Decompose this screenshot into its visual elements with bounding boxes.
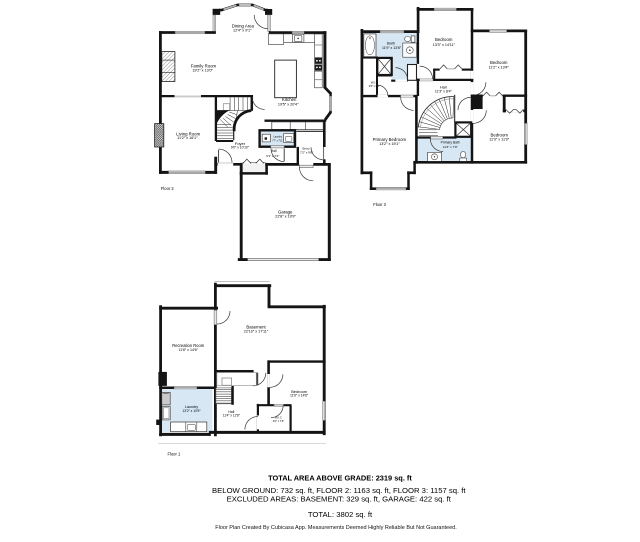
svg-text:Basement: Basement xyxy=(246,325,266,330)
svg-text:22′8″ x 19′9″: 22′8″ x 19′9″ xyxy=(275,214,296,218)
svg-text:Primary Bedroom: Primary Bedroom xyxy=(373,137,407,142)
svg-text:Hall: Hall xyxy=(271,149,277,153)
svg-text:12′4″ x 9′1″: 12′4″ x 9′1″ xyxy=(233,29,252,33)
svg-text:4′0″ x 7′6″: 4′0″ x 7′6″ xyxy=(273,419,284,423)
svg-text:3′6″ x 9′6″: 3′6″ x 9′6″ xyxy=(369,84,380,88)
svg-text:7′2″ x 9′6″: 7′2″ x 9′6″ xyxy=(300,150,313,154)
svg-text:Family Room: Family Room xyxy=(191,64,217,69)
svg-text:13′2″ x 15′1″: 13′2″ x 15′1″ xyxy=(379,142,400,146)
svg-text:Floor Plan Created By Cubicasa: Floor Plan Created By Cubicasa App. Meas… xyxy=(215,525,457,531)
svg-text:Kitchen: Kitchen xyxy=(282,97,297,102)
svg-text:Living Room: Living Room xyxy=(176,131,200,136)
svg-text:11′9″ x 13′8″: 11′9″ x 13′8″ xyxy=(382,46,402,50)
svg-text:Bedroom: Bedroom xyxy=(490,60,508,65)
svg-text:11′3″ x 7′9″: 11′3″ x 7′9″ xyxy=(443,145,459,149)
svg-text:11′6″ x 14′6″: 11′6″ x 14′6″ xyxy=(290,393,309,397)
svg-text:Floor 2: Floor 2 xyxy=(161,186,174,191)
svg-text:Floor 1: Floor 1 xyxy=(168,452,181,457)
svg-text:Laundry: Laundry xyxy=(273,135,282,138)
svg-text:11′8″ x 14′6″: 11′8″ x 14′6″ xyxy=(178,348,198,352)
svg-text:W.I.C: W.I.C xyxy=(371,80,378,84)
svg-text:Bedroom: Bedroom xyxy=(490,132,508,137)
svg-text:13′2″ x 10′9″: 13′2″ x 10′9″ xyxy=(182,409,201,413)
svg-text:11′2″ x 16′1″: 11′2″ x 16′1″ xyxy=(177,136,198,140)
svg-text:Primary Bath: Primary Bath xyxy=(441,141,460,145)
svg-text:EXCLUDED AREAS: BASEMENT: 329: EXCLUDED AREAS: BASEMENT: 329 sq. ft, GA… xyxy=(227,495,452,504)
svg-text:7′7″ x 7′11″: 7′7″ x 7′11″ xyxy=(272,140,283,142)
svg-text:TOTAL AREA ABOVE GRADE: 2319 s: TOTAL AREA ABOVE GRADE: 2319 sq. ft xyxy=(268,473,412,482)
svg-text:Floor 3: Floor 3 xyxy=(373,202,386,207)
svg-text:Entry: Entry xyxy=(302,146,310,150)
svg-text:Bath: Bath xyxy=(387,42,395,46)
svg-text:11′4″ x 12′8″: 11′4″ x 12′8″ xyxy=(223,413,241,417)
svg-text:19′2″ x 13′0″: 19′2″ x 13′0″ xyxy=(192,69,213,73)
svg-text:Hall: Hall xyxy=(440,85,447,89)
svg-text:13′3″ x 14′11″: 13′3″ x 14′11″ xyxy=(433,43,456,47)
svg-text:Dining Area: Dining Area xyxy=(232,24,255,29)
svg-text:9′0″ x 10′10″: 9′0″ x 10′10″ xyxy=(231,146,250,150)
svg-text:Bedroom: Bedroom xyxy=(435,37,453,42)
svg-text:11′3″ x 8′4″: 11′3″ x 8′4″ xyxy=(435,89,453,93)
svg-text:TOTAL: 3802 sq. ft: TOTAL: 3802 sq. ft xyxy=(308,510,373,519)
svg-text:22′10″ x 17′11″: 22′10″ x 17′11″ xyxy=(244,330,269,334)
svg-text:19′5″ x 20′4″: 19′5″ x 20′4″ xyxy=(278,102,299,106)
svg-text:W.I.C: W.I.C xyxy=(275,416,282,420)
svg-text:11′2″ x 13′4″: 11′2″ x 13′4″ xyxy=(489,65,510,69)
svg-text:11′3″ x 11′0″: 11′3″ x 11′0″ xyxy=(489,137,510,141)
svg-text:6′1″ x 7′4″: 6′1″ x 7′4″ xyxy=(266,154,279,158)
